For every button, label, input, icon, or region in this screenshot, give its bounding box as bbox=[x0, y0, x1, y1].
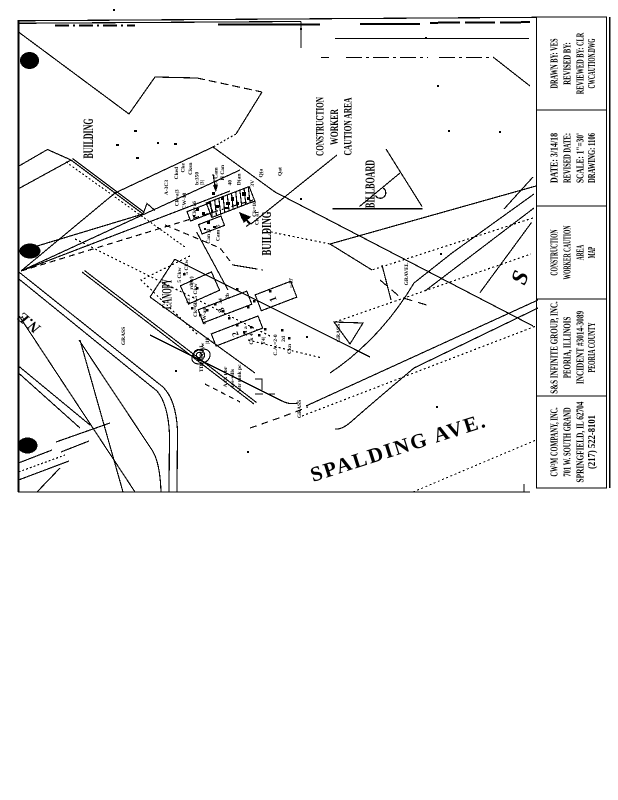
svg-text:GRASS: GRASS bbox=[297, 400, 303, 418]
svg-text:2d: 2d bbox=[281, 336, 287, 342]
svg-text:DRAWING: 1106: DRAWING: 1106 bbox=[587, 133, 598, 183]
svg-text:INCIDENT #3014-3089: INCIDENT #3014-3089 bbox=[576, 311, 587, 384]
svg-text:GRASS: GRASS bbox=[121, 327, 127, 345]
svg-text:PEORIA, ILLINOIS: PEORIA, ILLINOIS bbox=[563, 316, 574, 378]
svg-text:Qat: Qat bbox=[278, 167, 284, 176]
svg-text:Cke: Cke bbox=[181, 163, 187, 173]
svg-text:CANOPY: CANOPY bbox=[160, 279, 176, 309]
svg-text:lve-vills: lve-vills bbox=[230, 369, 236, 387]
svg-text:BILLBOARD: BILLBOARD bbox=[364, 160, 379, 208]
svg-text:MAP: MAP bbox=[587, 247, 598, 259]
svg-text:|3|: |3| bbox=[200, 180, 206, 185]
svg-text:3V: 3V bbox=[250, 180, 256, 187]
svg-text:Ck=a|3: Ck=a|3 bbox=[175, 189, 181, 206]
svg-text:DATE: 3/14/18: DATE: 3/14/18 bbox=[550, 133, 561, 183]
svg-text:SPRINGFIELD, IL 62704: SPRINGFIELD, IL 62704 bbox=[576, 402, 587, 483]
svg-text:Q(a: Q(a bbox=[258, 168, 265, 177]
svg-text:Cam |5: Cam |5 bbox=[216, 224, 222, 241]
svg-text:5 Ckw: 5 Ckw bbox=[177, 267, 183, 282]
svg-text:|18: |18 bbox=[205, 337, 211, 344]
svg-text:CW³M COMPANY, INC.: CW³M COMPANY, INC. bbox=[550, 407, 561, 477]
svg-text:701 W. SOUTH GRAND: 701 W. SOUTH GRAND bbox=[563, 407, 574, 476]
svg-text:Ck=6b: Ck=6b bbox=[193, 301, 199, 317]
svg-text:Can |1: Can |1 bbox=[206, 228, 212, 243]
svg-text:5 Ckw: 5 Ckw bbox=[193, 283, 199, 298]
svg-text:REVISED BY:: REVISED BY: bbox=[563, 42, 574, 84]
svg-text:5 Ckw: 5 Ckw bbox=[184, 259, 190, 274]
svg-text:40: 40 bbox=[228, 180, 234, 186]
svg-text:D(an: D(an bbox=[235, 174, 242, 186]
svg-text:S&S INFINITE GROUP, INC.: S&S INFINITE GROUP, INC. bbox=[550, 301, 561, 394]
svg-text:14 Cam: 14 Cam bbox=[214, 167, 220, 186]
svg-text:C.A.=2-0: C.A.=2-0 bbox=[273, 334, 279, 355]
svg-text:Y4|: Y4| bbox=[261, 337, 267, 345]
svg-text:CONSTRUCTION: CONSTRUCTION bbox=[550, 229, 561, 276]
svg-text:REVIEWED BY: CLR: REVIEWED BY: CLR bbox=[576, 32, 587, 94]
svg-text:BUILDING: BUILDING bbox=[81, 118, 97, 158]
svg-text:AREA: AREA bbox=[576, 244, 587, 260]
svg-text:REVISED DATE:: REVISED DATE: bbox=[563, 133, 574, 183]
svg-text:(217) 522-8101: (217) 522-8101 bbox=[587, 415, 598, 469]
svg-text:DRAWN BY: VES: DRAWN BY: VES bbox=[550, 38, 561, 88]
svg-text:CAUTION AREA: CAUTION AREA bbox=[341, 97, 355, 155]
svg-text:CWCAUTION.DWG: CWCAUTION.DWG bbox=[587, 38, 598, 88]
svg-text:GRASS: GRASS bbox=[336, 324, 342, 342]
svg-text:CW-18: CW-18 bbox=[182, 192, 188, 209]
svg-text:WORKER CAUTION: WORKER CAUTION bbox=[563, 225, 574, 279]
svg-text:BUILDING: BUILDING bbox=[259, 211, 274, 255]
svg-text:H Can: H Can bbox=[220, 165, 226, 180]
svg-text:Cked: Cked bbox=[174, 167, 180, 180]
svg-text:WORKER: WORKER bbox=[327, 109, 341, 145]
svg-text:Cksn: Cksn bbox=[188, 163, 194, 175]
svg-text:wtr tank pc: wtr tank pc bbox=[237, 364, 243, 392]
svg-text:13: 13 bbox=[186, 298, 192, 304]
svg-text:Ck=16: Ck=16 bbox=[192, 201, 198, 217]
svg-text:PEORIA COUNTY: PEORIA COUNTY bbox=[587, 322, 598, 373]
svg-text:A-3C3: A-3C3 bbox=[164, 180, 170, 196]
svg-text:TD&SPILL: TD&SPILL bbox=[199, 344, 205, 372]
svg-text:GRAVEL: GRAVEL bbox=[404, 262, 410, 285]
svg-text:Ck 4: Ck 4 bbox=[249, 333, 255, 344]
svg-text:SCALE: 1"=30': SCALE: 1"=30' bbox=[576, 133, 587, 183]
svg-text:A ck t br: A ck t br bbox=[223, 366, 229, 387]
svg-text:2b: 2b bbox=[225, 293, 231, 299]
svg-text:Ckn: Ckn bbox=[287, 344, 293, 354]
svg-text:CONSTRUCTION: CONSTRUCTION bbox=[313, 97, 327, 156]
svg-text:Ck a1: Ck a1 bbox=[254, 211, 260, 225]
svg-text:=40': =40' bbox=[289, 278, 295, 288]
svg-text:34: 34 bbox=[218, 298, 224, 304]
